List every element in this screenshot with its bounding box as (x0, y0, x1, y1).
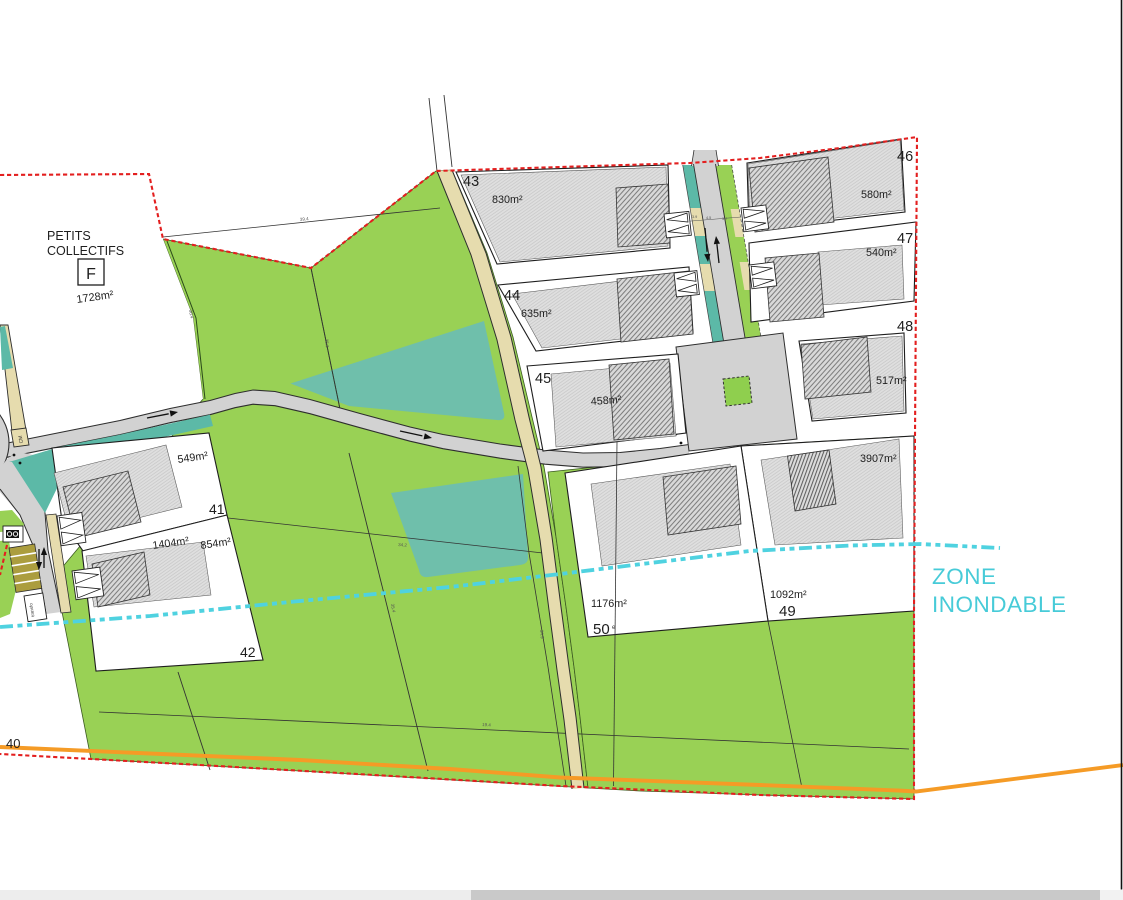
svg-text:458m²: 458m² (590, 394, 622, 408)
svg-text:39.4: 39.4 (300, 216, 310, 222)
svg-text:34.2: 34.2 (398, 542, 408, 548)
svg-text:48: 48 (897, 319, 913, 335)
svg-text:34.9: 34.9 (539, 630, 545, 640)
svg-text:3.7: 3.7 (722, 217, 727, 221)
svg-text:4.5: 4.5 (706, 216, 711, 220)
svg-text:ZONE: ZONE (932, 564, 997, 589)
svg-text:19.4: 19.4 (482, 722, 492, 727)
svg-text:45: 45 (535, 371, 551, 387)
svg-text:540m²: 540m² (866, 247, 897, 259)
svg-text:580m²: 580m² (861, 189, 892, 201)
svg-text:42: 42 (240, 644, 256, 660)
svg-text:1092m²: 1092m² (770, 589, 807, 601)
svg-text:43: 43 (463, 174, 479, 190)
svg-text:INONDABLE: INONDABLE (932, 592, 1067, 617)
svg-text:COLLECTIFS: COLLECTIFS (47, 244, 124, 258)
svg-text:49: 49 (779, 603, 796, 620)
svg-text:50: 50 (593, 621, 610, 638)
svg-text:46: 46 (897, 149, 913, 165)
svg-text:830m²: 830m² (492, 194, 523, 206)
svg-text:F: F (86, 266, 96, 283)
svg-text:517m²: 517m² (876, 375, 907, 387)
svg-text:41: 41 (209, 501, 225, 517)
svg-text:1176m²: 1176m² (591, 598, 627, 610)
svg-text:3907m²: 3907m² (860, 453, 897, 465)
svg-text:40: 40 (6, 736, 20, 751)
svg-text:3.9: 3.9 (692, 215, 697, 219)
svg-text:PETITS: PETITS (47, 229, 91, 243)
svg-text:47: 47 (897, 231, 913, 247)
svg-text:635m²: 635m² (521, 308, 552, 320)
svg-text:44: 44 (504, 288, 520, 304)
